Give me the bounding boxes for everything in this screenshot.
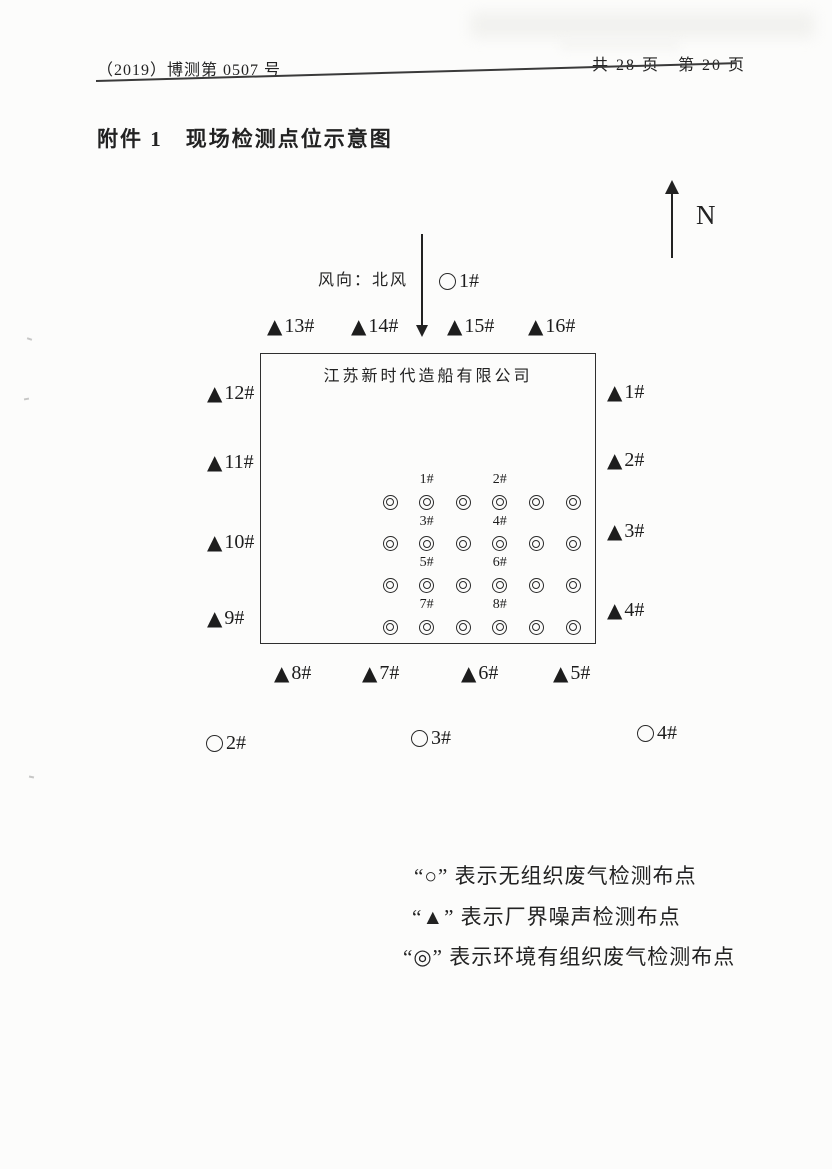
stack-point-label: 8# (482, 598, 518, 612)
unorganized-point-2: 2# (206, 733, 246, 753)
boundary-point-13: ▲ 13# (267, 316, 314, 336)
stack-point-icon (566, 620, 581, 635)
triangle-icon: ▲ (207, 452, 222, 472)
triangle-icon: ▲ (274, 663, 289, 683)
legend-item-organized: “◎” 表示环境有组织废气检测布点 (403, 941, 735, 971)
triangle-icon: ▲ (351, 316, 366, 336)
stack-point-label: 7# (409, 598, 445, 612)
boundary-point-5: ▲ 5# (553, 663, 590, 683)
triangle-icon: ▲ (207, 608, 222, 628)
boundary-point-11: ▲ 11# (207, 452, 254, 472)
unorganized-point-4: 4# (637, 723, 677, 743)
north-arrow-line (671, 190, 673, 258)
stack-point-icon (383, 578, 398, 593)
triangle-icon: ▲ (607, 382, 622, 402)
stack-point-icon (419, 495, 434, 510)
scan-smudge (560, 40, 680, 50)
legend-item-unorganized: “○” 表示无组织废气检测布点 (414, 860, 697, 890)
wind-direction-arrow-line (421, 234, 423, 326)
page-title: 附件 1 现场检测点位示意图 (97, 123, 393, 153)
stack-point-icon (456, 620, 471, 635)
stack-point-icon (529, 495, 544, 510)
scan-artifact (27, 337, 32, 340)
boundary-point-6: ▲ 6# (461, 663, 498, 683)
triangle-icon: ▲ (447, 316, 462, 336)
boundary-point-10: ▲ 10# (207, 532, 254, 552)
stack-point-icon (566, 536, 581, 551)
stack-point-icon (492, 578, 507, 593)
stack-point-label: 1# (409, 473, 445, 487)
stack-point-icon (566, 495, 581, 510)
stack-point-icon (456, 495, 471, 510)
stack-point-icon (566, 578, 581, 593)
stack-point-icon (492, 495, 507, 510)
stack-point-icon (529, 620, 544, 635)
triangle-icon: ▲ (461, 663, 476, 683)
stack-point-icon (492, 620, 507, 635)
boundary-point-15: ▲ 15# (447, 316, 494, 336)
boundary-point-12: ▲ 12# (207, 383, 254, 403)
boundary-point-16: ▲ 16# (528, 316, 575, 336)
company-name: 江苏新时代造船有限公司 (261, 362, 595, 386)
stack-point-icon (419, 620, 434, 635)
triangle-icon: ▲ (607, 600, 622, 620)
factory-boundary: 江苏新时代造船有限公司 1#2#3#4#5#6#7#8# (260, 353, 596, 644)
stack-point-label: 4# (482, 515, 518, 529)
stack-point-label: 2# (482, 473, 518, 487)
triangle-icon: ▲ (207, 532, 222, 552)
boundary-point-3: ▲ 3# (607, 521, 644, 541)
wind-label: 风向：北风 (318, 266, 408, 290)
stack-point-icon (383, 536, 398, 551)
triangle-icon: ▲ (553, 663, 568, 683)
stack-point-icon (383, 495, 398, 510)
stack-point-icon (419, 536, 434, 551)
triangle-icon: ▲ (267, 316, 282, 336)
stack-point-label: 3# (409, 515, 445, 529)
boundary-point-8: ▲ 8# (274, 663, 311, 683)
boundary-point-1: ▲ 1# (607, 382, 644, 402)
stack-point-icon (419, 578, 434, 593)
boundary-point-9: ▲ 9# (207, 608, 244, 628)
document-page: （2019）博测第 0507 号 共 28 页 第 20 页 附件 1 现场检测… (0, 0, 832, 1169)
north-label: N (696, 200, 716, 231)
stack-point-label: 6# (482, 556, 518, 570)
circle-icon (637, 725, 654, 742)
triangle-icon: ▲ (528, 316, 543, 336)
unorganized-point-1: 1# (439, 271, 479, 291)
stack-point-icon (456, 536, 471, 551)
circle-icon (411, 730, 428, 747)
stack-point-icon (456, 578, 471, 593)
triangle-icon: ▲ (607, 450, 622, 470)
boundary-point-2: ▲ 2# (607, 450, 644, 470)
scan-artifact (24, 398, 29, 401)
stack-point-label: 5# (409, 556, 445, 570)
triangle-icon: ▲ (207, 383, 222, 403)
stack-point-icon (529, 536, 544, 551)
stack-point-icon (492, 536, 507, 551)
circle-icon (439, 273, 456, 290)
triangle-icon: ▲ (607, 521, 622, 541)
stack-point-icon (529, 578, 544, 593)
boundary-point-4: ▲ 4# (607, 600, 644, 620)
boundary-point-7: ▲ 7# (362, 663, 399, 683)
circle-icon (206, 735, 223, 752)
legend-item-boundary-noise: “▲” 表示厂界噪声检测布点 (412, 901, 681, 931)
stack-point-icon (383, 620, 398, 635)
scan-artifact (29, 776, 34, 779)
triangle-icon: ▲ (362, 663, 377, 683)
boundary-point-14: ▲ 14# (351, 316, 398, 336)
wind-direction-arrow-icon (416, 325, 428, 337)
unorganized-point-3: 3# (411, 728, 451, 748)
scan-smudge (470, 12, 815, 38)
